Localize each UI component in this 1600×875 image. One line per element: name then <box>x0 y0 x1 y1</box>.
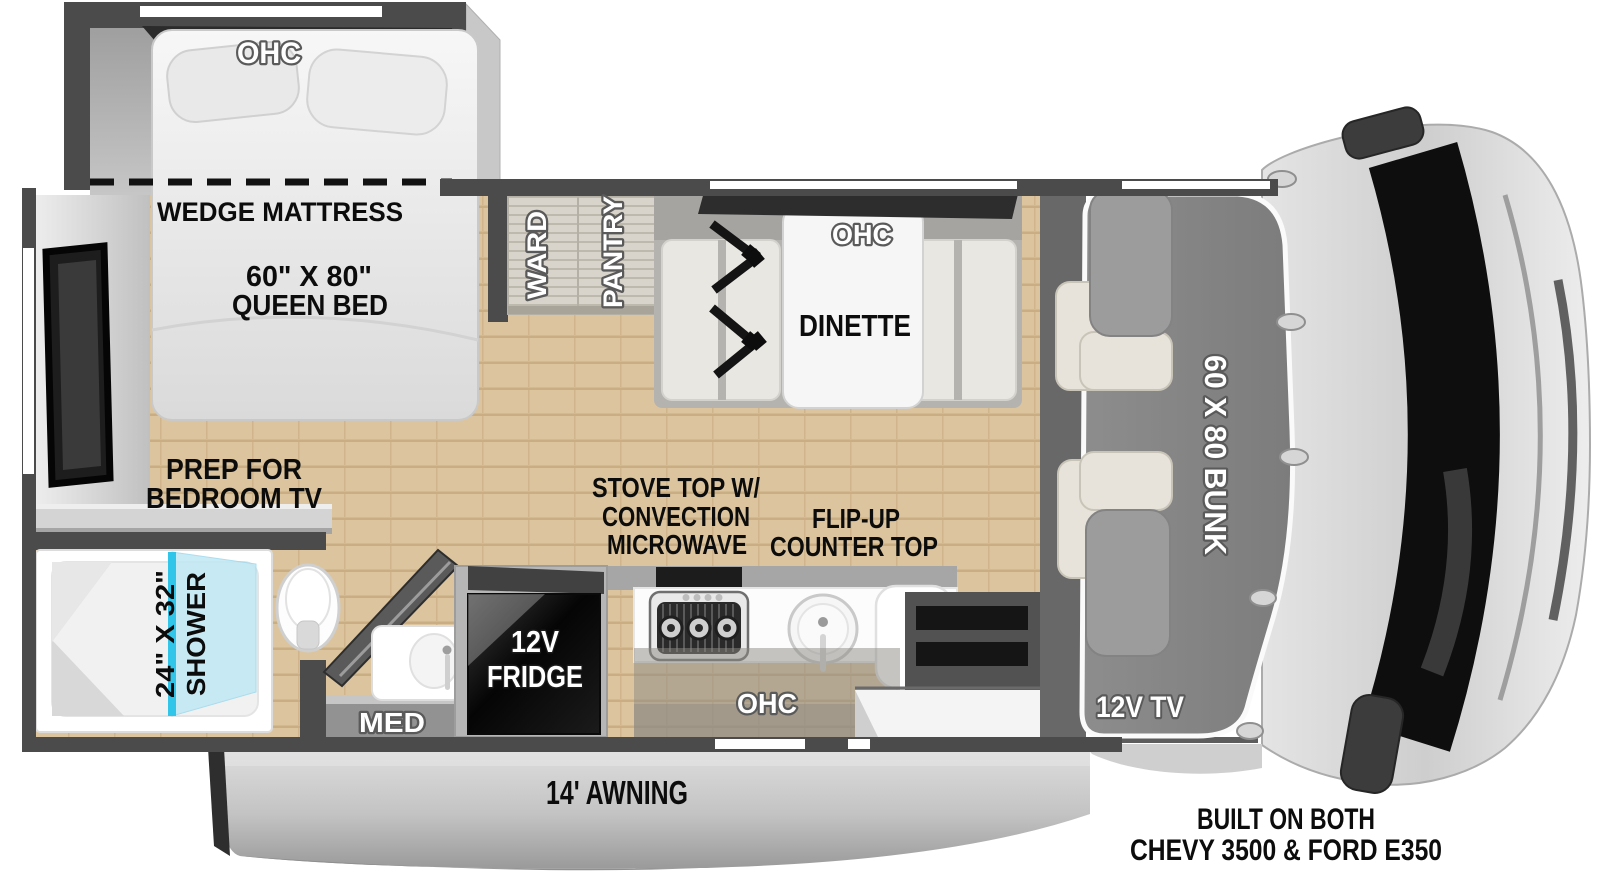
queen-type-label: QUEEN BED <box>232 290 388 322</box>
step-slot <box>916 642 1028 666</box>
flip-up-label-2: COUNTER TOP <box>770 531 938 562</box>
seat-cushion <box>1086 510 1170 656</box>
built-on-label-1: BUILT ON BOTH <box>1197 803 1375 836</box>
pantry-label: PANTRY <box>598 196 628 308</box>
bedroom-tv <box>46 246 110 484</box>
flip-up-label-1: FLIP-UP <box>812 503 900 534</box>
bench-right-divider <box>954 240 962 400</box>
stove-label-3: MICROWAVE <box>607 529 747 560</box>
med-label: MED <box>359 707 425 738</box>
floorplan-canvas: OHC WEDGE MATTRESS 60" X 80" QUEEN BED P… <box>0 0 1600 875</box>
fridge-label-2: FRIDGE <box>487 659 583 694</box>
built-on-label-2: CHEVY 3500 & FORD E350 <box>1130 834 1442 867</box>
wedge-mattress-label: WEDGE MATTRESS <box>157 197 403 227</box>
kitchen-ohc-label: OHC <box>737 688 797 719</box>
bath-faucet-stem <box>445 654 450 690</box>
fridge-label-1: 12V <box>511 624 559 659</box>
step-slot <box>916 606 1028 630</box>
kitchen-window <box>715 739 805 749</box>
stove-label-2: CONVECTION <box>602 501 750 532</box>
tv-panel <box>58 260 101 470</box>
cabinet-base-shadow <box>508 306 656 314</box>
slideout-wall-left <box>64 2 90 190</box>
tv-prep-label-1: PREP FOR <box>166 454 302 486</box>
shower-label: SHOWER <box>181 572 211 696</box>
dinette-label: DINETTE <box>799 308 911 343</box>
seat-cushion <box>1090 190 1172 336</box>
rv-floorplan: OHC WEDGE MATTRESS 60" X 80" QUEEN BED P… <box>0 0 1600 875</box>
toilet-seat <box>286 569 330 629</box>
wall-bottom <box>22 737 1122 752</box>
bedroom-ohc-label: OHC <box>237 37 301 70</box>
bathroom-wall-stub <box>300 660 326 737</box>
faucet-icon <box>818 617 828 627</box>
cabinet-wall-stub <box>488 196 508 322</box>
cab-tv-label: 12V TV <box>1096 691 1184 724</box>
toilet <box>277 565 339 651</box>
bath-faucet-icon <box>443 646 452 655</box>
storage-cabinets <box>488 196 656 322</box>
tv-prep-label-2: BEDROOM TV <box>146 483 323 515</box>
entry-steps <box>855 690 1047 737</box>
range-hood <box>656 567 742 589</box>
shower-size-label: 24" X 32" <box>150 570 180 698</box>
toilet-base <box>297 621 319 649</box>
dinette-window <box>710 181 1017 189</box>
stove-label-1: STOVE TOP W/ <box>592 472 760 503</box>
entry-window <box>848 739 870 749</box>
rear-window <box>23 248 34 474</box>
bunk-label: 60 X 80 BUNK <box>1198 355 1233 556</box>
queen-size-label: 60" X 80" <box>246 261 372 293</box>
body-cab-gap <box>1122 181 1270 189</box>
pillow-right <box>305 47 449 137</box>
bathroom-wall <box>36 532 326 550</box>
ward-label: WARD <box>522 211 552 299</box>
bedroom-window <box>140 6 382 17</box>
dinette-ohc-label: OHC <box>832 219 892 250</box>
bath-sink-bowl <box>410 634 458 688</box>
awning-label: 14' AWNING <box>546 774 688 811</box>
